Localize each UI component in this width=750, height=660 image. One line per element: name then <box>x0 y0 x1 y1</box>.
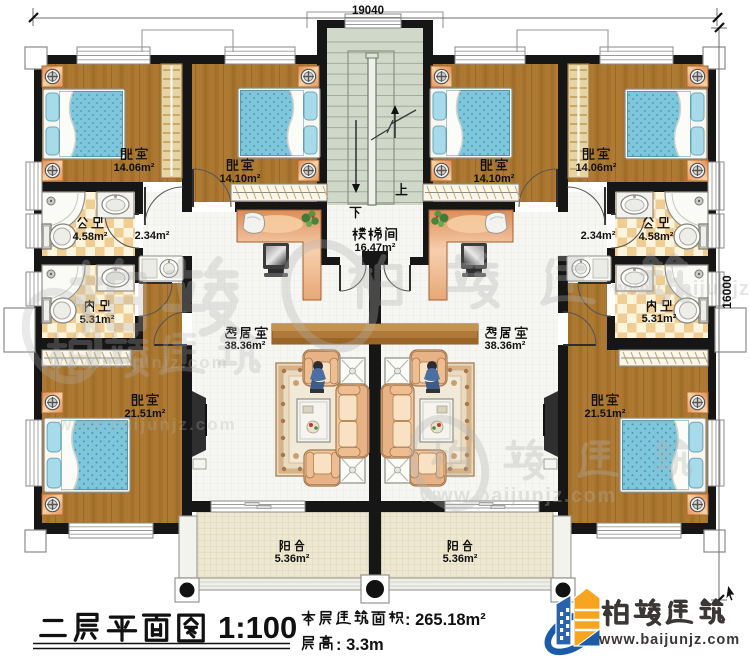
svg-text:2.34m²: 2.34m² <box>135 230 170 242</box>
svg-text:14.10m²: 14.10m² <box>220 173 261 185</box>
svg-text:www.baijunjz.com: www.baijunjz.com <box>57 415 237 434</box>
svg-text:38.36m²: 38.36m² <box>485 340 526 352</box>
svg-text:5.31m²: 5.31m² <box>642 313 677 325</box>
svg-text:5.36m²: 5.36m² <box>443 553 478 565</box>
svg-text:4.58m²: 4.58m² <box>73 231 108 243</box>
svg-text:16.47m²: 16.47m² <box>355 242 396 254</box>
svg-text:14.10m²: 14.10m² <box>474 173 515 185</box>
svg-text:5.36m²: 5.36m² <box>275 553 310 565</box>
svg-text:: 3.3m: : 3.3m <box>336 636 384 654</box>
svg-text:www.baijunjz.com: www.baijunjz.com <box>419 485 617 507</box>
svg-text:1:100: 1:100 <box>218 610 297 645</box>
svg-text:4.58m²: 4.58m² <box>639 231 674 243</box>
svg-text:www.baijunjz.com: www.baijunjz.com <box>598 632 740 648</box>
svg-text:2.34m²: 2.34m² <box>581 230 616 242</box>
svg-text:: 265.18m²: : 265.18m² <box>405 611 486 629</box>
svg-text:21.51m²: 21.51m² <box>585 408 626 420</box>
svg-text:14.06m²: 14.06m² <box>114 162 155 174</box>
svg-text:19040: 19040 <box>352 5 384 17</box>
svg-text:16000: 16000 <box>720 275 734 309</box>
svg-text:14.06m²: 14.06m² <box>576 162 617 174</box>
